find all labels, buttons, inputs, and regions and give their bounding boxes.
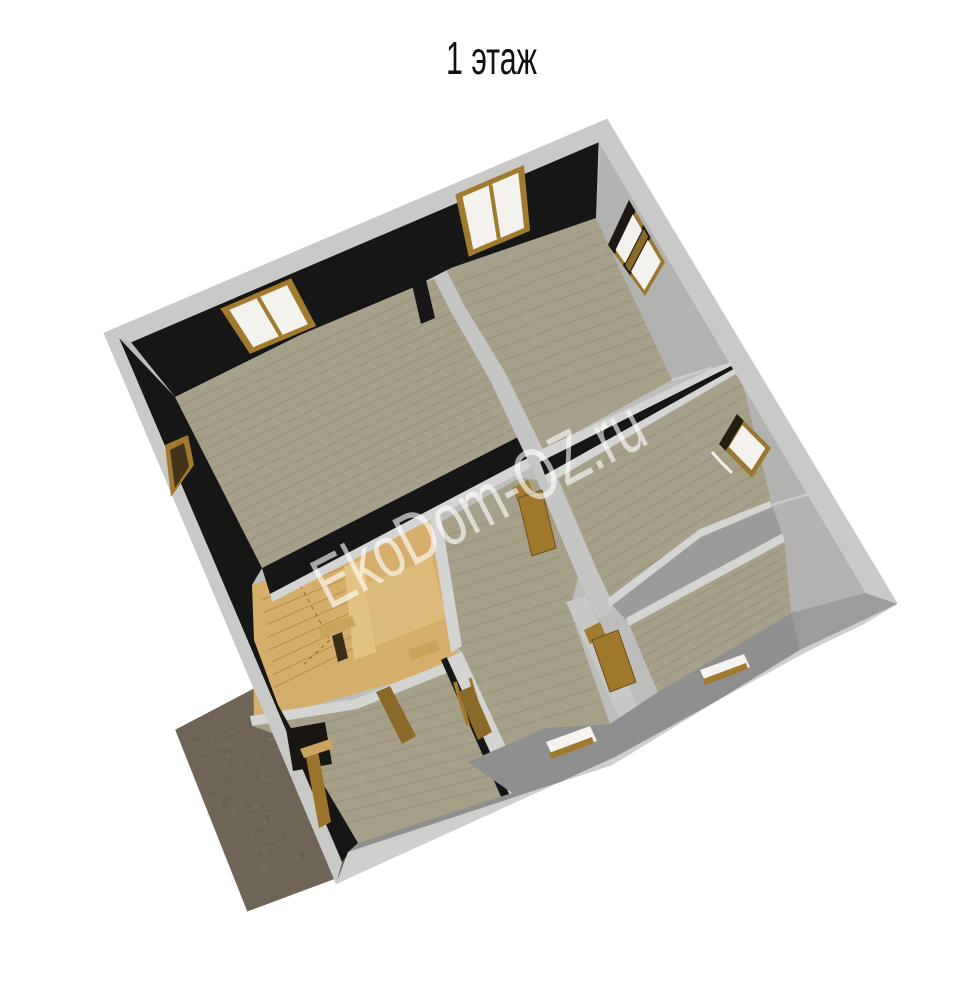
svg-text:1 этаж: 1 этаж [446,34,537,85]
